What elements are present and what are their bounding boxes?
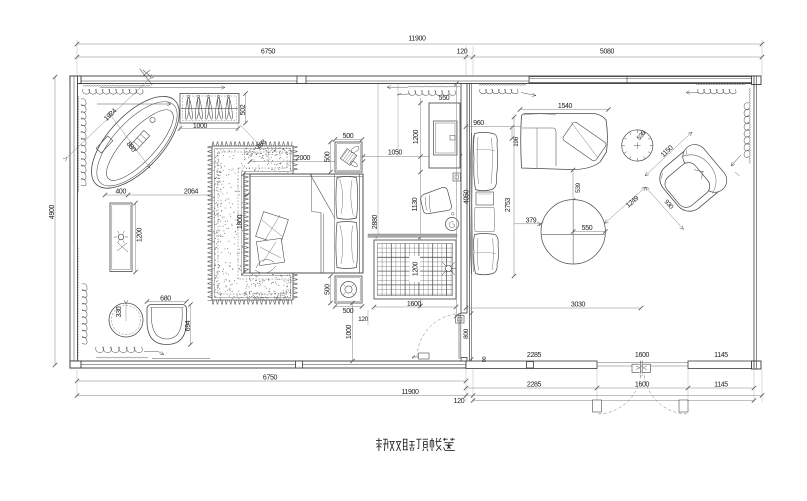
svg-text:539: 539 xyxy=(575,182,582,193)
svg-text:680: 680 xyxy=(160,295,171,302)
svg-text:90: 90 xyxy=(482,357,488,363)
svg-text:1130: 1130 xyxy=(412,197,419,211)
svg-text:1200: 1200 xyxy=(413,129,420,144)
svg-text:3030: 3030 xyxy=(571,302,586,309)
svg-text:500: 500 xyxy=(343,133,354,140)
svg-text:2000: 2000 xyxy=(296,155,311,162)
svg-text:800: 800 xyxy=(463,328,470,339)
svg-text:500: 500 xyxy=(325,284,332,295)
svg-text:6750: 6750 xyxy=(263,374,278,381)
svg-text:11900: 11900 xyxy=(401,389,419,396)
svg-text:2880: 2880 xyxy=(372,214,379,229)
svg-text:2753: 2753 xyxy=(505,197,512,212)
svg-text:379: 379 xyxy=(526,217,537,224)
svg-text:502: 502 xyxy=(240,104,247,115)
svg-text:500: 500 xyxy=(325,151,332,162)
svg-text:1600: 1600 xyxy=(635,352,650,359)
svg-text:1600: 1600 xyxy=(407,301,422,308)
svg-text:4900: 4900 xyxy=(49,204,56,219)
svg-text:330: 330 xyxy=(116,306,123,317)
svg-text:2285: 2285 xyxy=(527,352,542,359)
svg-text:960: 960 xyxy=(473,120,484,127)
svg-text:4050: 4050 xyxy=(464,189,471,204)
svg-text:500: 500 xyxy=(343,308,354,315)
svg-text:400: 400 xyxy=(115,189,126,196)
svg-text:550: 550 xyxy=(439,95,450,102)
svg-text:1000: 1000 xyxy=(346,324,353,339)
svg-text:1540: 1540 xyxy=(558,103,573,110)
svg-text:6750: 6750 xyxy=(261,49,276,56)
svg-text:1145: 1145 xyxy=(714,381,728,388)
svg-text:1200: 1200 xyxy=(413,261,420,276)
svg-text:11900: 11900 xyxy=(408,36,426,43)
svg-text:550: 550 xyxy=(582,225,593,232)
svg-text:1050: 1050 xyxy=(388,149,403,156)
svg-text:1800: 1800 xyxy=(237,214,244,229)
svg-text:196: 196 xyxy=(513,136,520,147)
svg-text:2285: 2285 xyxy=(527,381,542,388)
svg-text:1000: 1000 xyxy=(193,123,208,130)
svg-text:1145: 1145 xyxy=(714,352,728,359)
svg-text:1200: 1200 xyxy=(137,227,144,242)
svg-text:120: 120 xyxy=(454,398,465,405)
svg-text:2064: 2064 xyxy=(184,189,199,196)
svg-text:120: 120 xyxy=(358,316,369,323)
svg-text:5080: 5080 xyxy=(600,49,615,56)
svg-text:694: 694 xyxy=(185,320,192,331)
